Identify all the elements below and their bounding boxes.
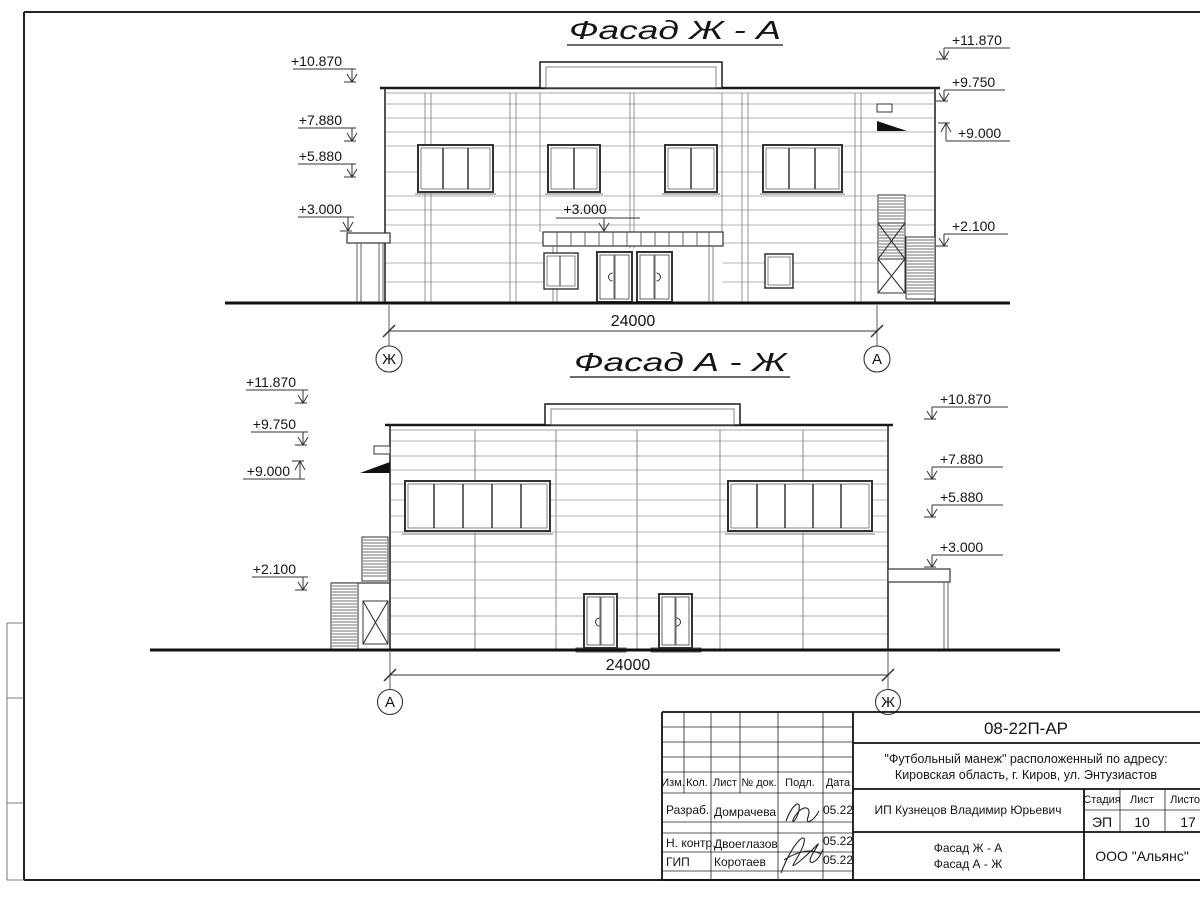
facade-zha-marks-right: +11.870 +9.750 +9.000 +2.100	[936, 32, 1010, 246]
col-date: Дата	[826, 777, 851, 789]
elevation-mark-label: +11.870	[246, 374, 296, 390]
date-gip: 05.22	[823, 853, 853, 867]
axis-bubble-label: А	[872, 351, 882, 368]
date-razrab: 05.22	[823, 803, 853, 817]
facade-azh-marks-right: +10.870 +7.880 +5.880 +3.000	[924, 391, 1008, 567]
sheet-header: Лист	[1130, 794, 1154, 806]
elevation-mark-label: +9.750	[253, 416, 296, 432]
elevation-mark-label: +3.000	[940, 539, 983, 555]
stage-header: Стадия	[1083, 794, 1121, 806]
axis-bubble-label: Ж	[382, 351, 396, 368]
axis-bubble-label: А	[385, 694, 395, 711]
elevation-mark-label: +7.880	[299, 112, 342, 128]
name-nkontr: Двоеглазов	[714, 837, 778, 851]
client-name: ИП Кузнецов Владимир Юрьевич	[875, 803, 1062, 817]
facade-zha-linework: +3.000	[225, 62, 1010, 303]
axis-bubble-label: Ж	[881, 694, 895, 711]
facade-azh-linework	[150, 404, 1060, 652]
col-izm: Изм.	[661, 777, 685, 789]
project-address-line2: Кировская область, г. Киров, ул. Энтузиа…	[895, 768, 1157, 782]
elevation-mark-label: +2.100	[253, 561, 296, 577]
name-gip: Коротаев	[714, 855, 766, 869]
organization-name: ООО "Альянс"	[1095, 848, 1189, 864]
facade-azh-stair	[331, 446, 390, 649]
elevation-mark-label: +9.000	[958, 125, 1001, 141]
role-nkontr: Н. контр.	[666, 836, 716, 850]
col-kol: Кол.	[686, 777, 708, 789]
sheets-total: 17	[1180, 814, 1196, 830]
facade-azh-marks-left: +11.870 +9.750 +9.000 +2.100	[243, 374, 308, 590]
col-doc-no: № док.	[741, 777, 776, 789]
date-nkontr: 05.22	[823, 834, 853, 848]
dimension-label: 24000	[611, 313, 656, 330]
doc-number: 08-22П-АР	[984, 719, 1068, 738]
dimension-label: 24000	[606, 657, 651, 674]
elevation-mark-label: +3.000	[299, 201, 342, 217]
facade-azh-title: Фасад А - Ж	[574, 347, 789, 377]
elevation-mark-label: +9.000	[247, 463, 290, 479]
facade-azh: Фасад А - Ж	[150, 347, 1060, 715]
drawing-sheet: Фасад Ж - А	[0, 0, 1200, 900]
col-list: Лист	[713, 777, 737, 789]
facade-zha: Фасад Ж - А	[225, 15, 1010, 372]
name-razrab: Домрачева	[714, 805, 776, 819]
elevation-mark-label: +10.870	[291, 53, 342, 69]
elevation-mark-label: +7.880	[940, 451, 983, 467]
title-block: Изм. Кол. Лист № док. Подл. Дата Разраб.…	[661, 712, 1200, 880]
elevation-mark-label: +5.880	[299, 148, 342, 164]
elevation-mark-label: +2.100	[952, 218, 995, 234]
sheet-number: 10	[1134, 814, 1150, 830]
role-gip: ГИП	[666, 855, 690, 869]
elevation-mark-label: +9.750	[952, 74, 995, 90]
facade-azh-dimension: 24000 А Ж	[378, 652, 901, 715]
elevation-mark-label: +10.870	[940, 391, 991, 407]
role-razrab: Разраб.	[666, 803, 709, 817]
sheet-name-line1: Фасад Ж - А	[934, 841, 1003, 855]
sheet-name-line2: Фасад А - Ж	[934, 857, 1003, 871]
elevation-mark-label: +11.870	[952, 32, 1002, 48]
facade-zha-title: Фасад Ж - А	[569, 15, 781, 45]
project-address-line1: "Футбольный манеж" расположенный по адре…	[884, 752, 1167, 766]
stage-value: ЭП	[1092, 814, 1112, 830]
facade-zha-marks-left: +10.870 +7.880 +5.880 +3.000	[291, 53, 357, 231]
signature-scribbles	[781, 804, 823, 873]
elevation-mark-label: +5.880	[940, 489, 983, 505]
sheets-header: Листов	[1170, 794, 1200, 806]
col-podp: Подл.	[785, 777, 815, 789]
canopy-mark-label: +3.000	[563, 201, 606, 217]
